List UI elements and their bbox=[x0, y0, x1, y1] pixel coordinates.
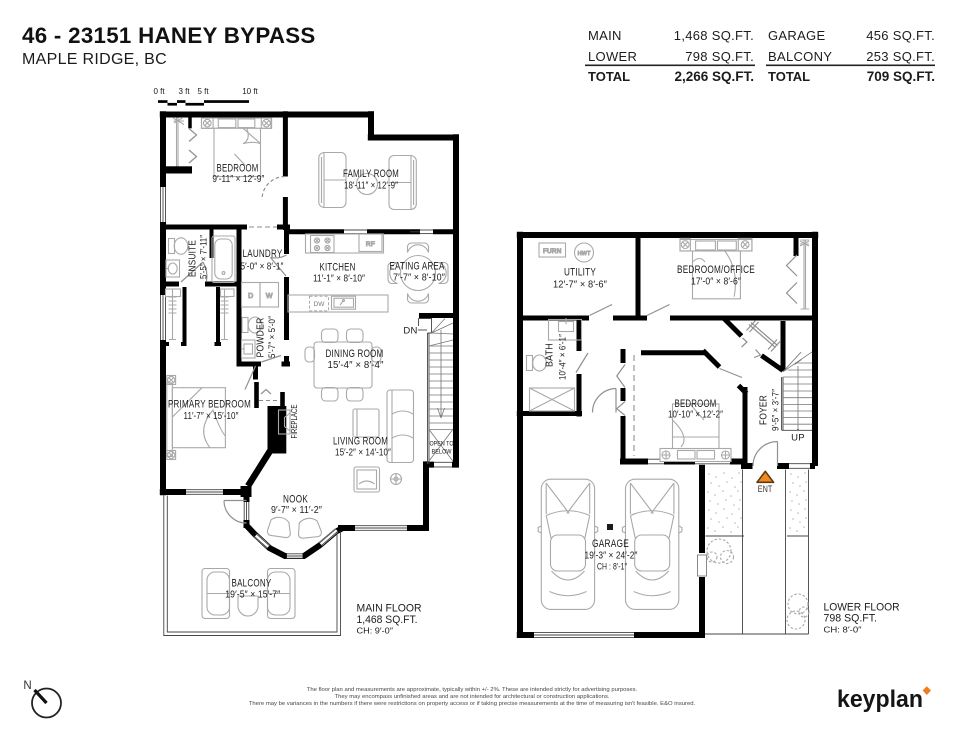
svg-text:The floor plan and measurement: The floor plan and measurements are appr… bbox=[307, 687, 638, 693]
svg-text:They may encompass unfinished: They may encompass unfinished areas and … bbox=[334, 694, 609, 700]
svg-text:N: N bbox=[23, 680, 31, 692]
svg-text:keyplan: keyplan bbox=[837, 686, 923, 713]
svg-text:There may be variances in the: There may be variances in the numbers if… bbox=[249, 701, 696, 707]
